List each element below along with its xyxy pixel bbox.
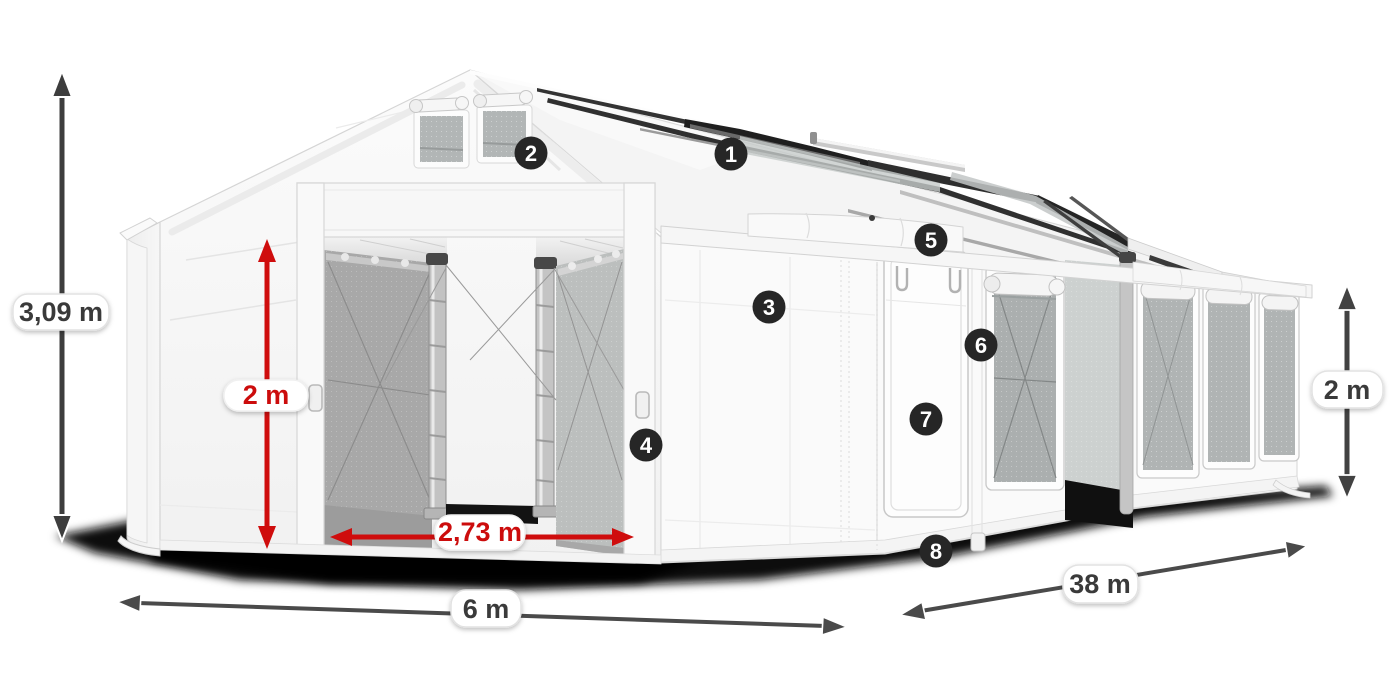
svg-text:2 m: 2 m <box>243 380 290 410</box>
svg-text:2 m: 2 m <box>1324 375 1371 405</box>
svg-text:38 m: 38 m <box>1069 569 1131 599</box>
svg-text:3,09 m: 3,09 m <box>19 297 103 327</box>
svg-text:2,73 m: 2,73 m <box>438 517 522 547</box>
svg-text:2: 2 <box>525 141 537 166</box>
svg-text:4: 4 <box>640 433 653 458</box>
svg-text:6 m: 6 m <box>463 594 510 624</box>
svg-text:1: 1 <box>725 142 737 167</box>
svg-text:8: 8 <box>930 539 942 564</box>
svg-text:7: 7 <box>920 407 932 432</box>
svg-text:5: 5 <box>925 228 937 253</box>
svg-text:3: 3 <box>763 295 775 320</box>
svg-text:6: 6 <box>975 333 987 358</box>
